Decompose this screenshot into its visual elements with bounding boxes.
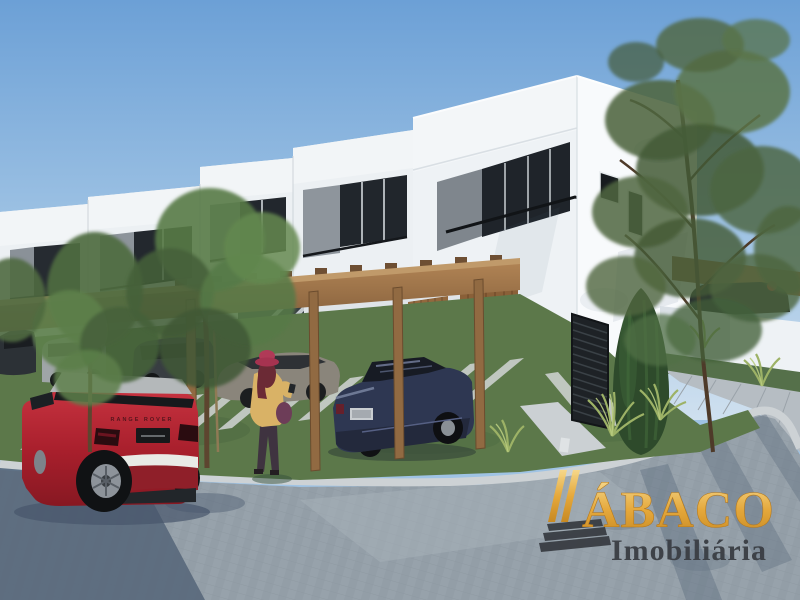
townhouse-unit bbox=[293, 130, 413, 258]
tagline-text: Imobiliária bbox=[611, 534, 767, 567]
purse bbox=[276, 402, 292, 424]
render-image: RANGE ROVER bbox=[0, 0, 800, 600]
wheel bbox=[76, 450, 132, 512]
suv-badge-text: RANGE ROVER bbox=[111, 417, 174, 423]
gate bbox=[572, 314, 608, 428]
taillight bbox=[178, 424, 198, 442]
scene-canvas: RANGE ROVER bbox=[0, 0, 800, 600]
taillight bbox=[94, 428, 120, 446]
brand-text: ÁBACO bbox=[582, 481, 775, 539]
